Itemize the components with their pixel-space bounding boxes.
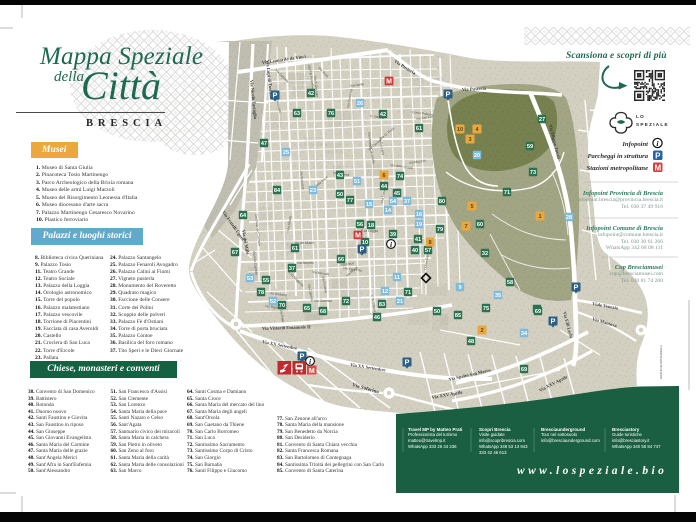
- svg-text:75: 75: [483, 306, 489, 312]
- svg-text:50: 50: [434, 309, 440, 315]
- svg-text:14: 14: [385, 208, 392, 214]
- svg-text:43: 43: [337, 173, 343, 179]
- svg-text:10: 10: [457, 127, 463, 133]
- svg-text:48: 48: [468, 339, 474, 345]
- svg-text:P: P: [360, 245, 365, 254]
- svg-text:39: 39: [390, 232, 396, 238]
- svg-text:37: 37: [404, 199, 410, 205]
- svg-text:M: M: [355, 233, 361, 240]
- svg-text:P: P: [273, 91, 278, 100]
- svg-text:84: 84: [274, 188, 281, 194]
- svg-text:P: P: [551, 317, 556, 326]
- svg-text:45: 45: [394, 191, 400, 197]
- svg-text:32: 32: [482, 251, 488, 257]
- svg-text:83: 83: [379, 302, 385, 308]
- svg-text:25: 25: [283, 150, 289, 156]
- svg-text:8: 8: [428, 240, 431, 246]
- svg-text:44: 44: [381, 184, 388, 190]
- svg-text:85: 85: [455, 313, 461, 319]
- svg-text:P: P: [446, 90, 451, 99]
- svg-text:69: 69: [521, 367, 527, 373]
- svg-text:42: 42: [380, 112, 386, 118]
- svg-text:SPEZIALE: SPEZIALE: [636, 122, 669, 127]
- svg-text:6: 6: [382, 173, 385, 179]
- svg-text:18: 18: [368, 223, 374, 229]
- svg-text:67: 67: [232, 250, 238, 256]
- svg-text:16: 16: [416, 212, 422, 218]
- svg-text:M: M: [309, 368, 315, 375]
- svg-text:41: 41: [415, 237, 421, 243]
- svg-text:5: 5: [470, 204, 473, 210]
- svg-text:40: 40: [412, 248, 418, 254]
- svg-text:P: P: [405, 358, 410, 367]
- svg-text:69: 69: [535, 309, 541, 315]
- svg-text:M: M: [654, 163, 661, 172]
- svg-text:61: 61: [416, 126, 422, 132]
- svg-text:1: 1: [538, 214, 541, 220]
- svg-text:26: 26: [357, 101, 363, 107]
- svg-text:52: 52: [270, 299, 276, 305]
- svg-text:74: 74: [397, 174, 404, 180]
- svg-text:M: M: [386, 79, 392, 86]
- svg-text:42: 42: [308, 91, 314, 97]
- svg-text:23: 23: [310, 188, 316, 194]
- svg-text:37: 37: [289, 266, 295, 272]
- svg-text:46: 46: [374, 315, 380, 321]
- svg-text:P.za Loggia: P.za Loggia: [361, 229, 378, 233]
- svg-text:11: 11: [394, 275, 400, 281]
- svg-text:Via Moretto: Via Moretto: [297, 261, 314, 265]
- svg-text:35: 35: [495, 293, 501, 299]
- svg-text:77: 77: [347, 198, 353, 204]
- svg-text:53: 53: [247, 276, 253, 282]
- svg-text:65: 65: [304, 306, 310, 312]
- svg-text:50: 50: [337, 192, 343, 198]
- svg-text:28: 28: [566, 215, 572, 221]
- svg-text:79: 79: [437, 227, 443, 233]
- svg-text:66: 66: [338, 257, 344, 263]
- svg-text:57: 57: [425, 248, 431, 254]
- svg-text:27: 27: [539, 117, 545, 123]
- svg-text:GRAFICHE ARTIGIANELLI: GRAFICHE ARTIGIANELLI: [659, 345, 663, 379]
- svg-text:P: P: [655, 151, 661, 160]
- svg-text:55: 55: [263, 278, 269, 284]
- svg-text:61: 61: [292, 246, 298, 252]
- svg-text:3: 3: [468, 137, 471, 143]
- svg-text:54: 54: [390, 199, 397, 205]
- svg-text:63: 63: [294, 111, 300, 117]
- svg-text:Via Gramsci: Via Gramsci: [314, 299, 332, 303]
- svg-text:P: P: [300, 352, 305, 361]
- svg-text:76: 76: [328, 111, 334, 117]
- svg-text:78: 78: [258, 290, 264, 296]
- svg-text:68: 68: [320, 309, 326, 315]
- svg-text:9: 9: [458, 285, 461, 291]
- svg-text:51: 51: [354, 179, 360, 185]
- svg-text:12: 12: [382, 289, 388, 295]
- svg-text:20: 20: [474, 153, 480, 159]
- svg-text:7: 7: [464, 224, 467, 230]
- svg-text:72: 72: [343, 299, 349, 305]
- svg-text:64: 64: [240, 213, 247, 219]
- svg-text:80: 80: [439, 199, 445, 205]
- svg-text:47: 47: [261, 141, 267, 147]
- svg-text:70: 70: [279, 303, 285, 309]
- svg-text:71: 71: [405, 290, 411, 296]
- svg-text:2: 2: [480, 328, 483, 334]
- svg-text:15: 15: [366, 202, 372, 208]
- svg-text:60: 60: [477, 222, 483, 228]
- svg-text:21: 21: [397, 299, 403, 305]
- svg-text:19: 19: [416, 222, 422, 228]
- svg-text:LO: LO: [636, 114, 645, 119]
- svg-text:34: 34: [521, 331, 528, 337]
- svg-text:56: 56: [357, 222, 363, 228]
